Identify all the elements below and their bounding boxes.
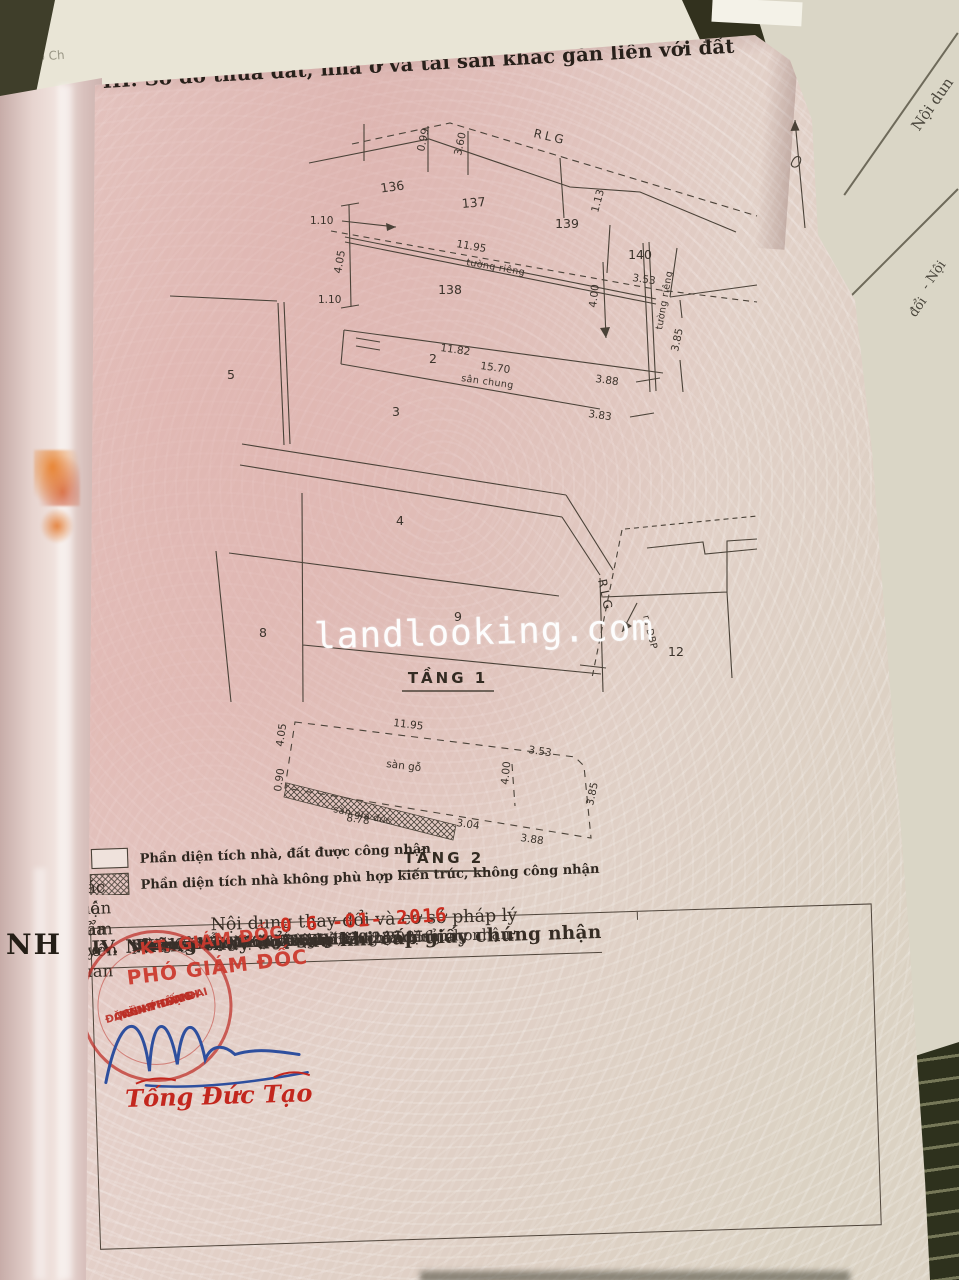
dim-label: 3.88 xyxy=(520,832,545,847)
dim-label: 1.13 xyxy=(589,188,607,214)
dim-label: 4.05 xyxy=(332,249,348,274)
dim-label: 0.90 xyxy=(272,768,287,793)
parcel-label-5: 5 xyxy=(227,367,235,382)
plot-divider xyxy=(560,158,564,218)
dim-label: 11.82 xyxy=(440,342,471,358)
page-edge-highlight xyxy=(711,0,802,26)
dim-line xyxy=(603,262,606,338)
parcel-label-136: 136 xyxy=(380,177,406,195)
dim-label: 3.53 xyxy=(632,272,657,287)
page-fold-left xyxy=(0,0,102,1280)
section4-table: IV. Những thay đổi sau khi cấp giấy chứn… xyxy=(90,903,882,1249)
dim-label: 3.88 xyxy=(595,373,620,388)
parcel-label-140: 140 xyxy=(628,247,652,262)
north-arrow-head xyxy=(791,120,800,131)
orange-mark xyxy=(34,450,80,506)
photo-canvas: ký: Phó Ch ng: Th Nội dun - Nội đổi III.… xyxy=(0,0,959,1280)
dim-label: 4.05 xyxy=(274,723,289,748)
dim-label: 3.85 xyxy=(669,327,686,352)
section4-content-row: Bà: NGUYỄN THỊ TÁM - Năm sinh: 1945 - CM… xyxy=(91,929,98,1151)
edge-line xyxy=(670,285,757,297)
dim-label: 11.95 xyxy=(393,717,424,733)
dim-label: 3.53 xyxy=(528,744,553,759)
band-top-edge xyxy=(309,139,736,232)
site-plan-diagram: RLG 0.99 3.60 1.13 136 137 139 140 3.53 … xyxy=(80,95,860,895)
background-page-rule-line xyxy=(843,32,958,195)
parcel-label-3: 3 xyxy=(392,404,400,419)
parcel-label-137: 137 xyxy=(461,194,486,211)
parcel-label-12: 12 xyxy=(668,644,684,659)
dim-label: 4.00 xyxy=(587,284,602,309)
certificate-page: III. Sơ đồ thửa đất, nhà ở và tài sản kh… xyxy=(0,0,959,1280)
parcel-label-138: 138 xyxy=(438,282,462,297)
legend-box-recognized xyxy=(91,848,128,868)
parcel-label-4: 4 xyxy=(396,513,404,528)
legend-text-not-recognized: Phần diện tích nhà không phù hợp kiến tr… xyxy=(140,861,600,893)
wall-right xyxy=(643,242,656,392)
background-page-text: ng: Th xyxy=(2,65,41,82)
parcel-label-139: 139 xyxy=(555,216,579,231)
background-page-text: Nội dun xyxy=(908,74,958,134)
background-page-text: - Nội xyxy=(919,258,950,293)
background-page-text: đổi xyxy=(906,295,930,320)
dim-label: 3.60 xyxy=(452,131,469,156)
dim-label: 0.99 xyxy=(415,127,432,152)
boundary-label-rlg: RLG xyxy=(532,126,568,147)
parcel-label-2: 2 xyxy=(429,351,437,366)
boundary-dashed-mid xyxy=(331,231,757,302)
dim-label: 3.85 xyxy=(584,781,601,806)
north-arrow xyxy=(795,120,805,228)
signer-name: Tống Đức Tạo xyxy=(116,1078,322,1113)
background-page-rule-line xyxy=(841,188,958,305)
plot-divider xyxy=(607,225,610,273)
step-line xyxy=(647,542,757,554)
dim-label: 3.04 xyxy=(456,817,481,832)
dim-arrow xyxy=(600,327,610,338)
note-yard: sân chung xyxy=(461,373,515,391)
left-edge-text: NH xyxy=(6,928,62,961)
plot4-band xyxy=(240,444,613,575)
dim-label: 1.10 xyxy=(318,294,341,306)
dim-arrow xyxy=(386,223,396,231)
boundary-dashed-right xyxy=(625,516,757,529)
background-page-text: ký: Phó Ch xyxy=(2,48,65,66)
wall-tick xyxy=(356,338,380,350)
dim-label: 3.83 xyxy=(588,408,613,423)
dim-label: 11.95 xyxy=(455,238,487,255)
bottom-shadow xyxy=(420,1271,850,1280)
fold-crease xyxy=(58,85,72,1280)
dim-label: 4.00 xyxy=(499,761,513,786)
dim-label: 1.10 xyxy=(310,215,333,227)
parcel-label-8: 8 xyxy=(259,625,267,640)
note-wood-floor: sàn gỗ xyxy=(386,757,422,774)
dim-label: 15.70 xyxy=(480,360,511,376)
note-wall: tường riêng xyxy=(654,270,675,330)
orange-mark xyxy=(40,508,74,544)
floor1-label: TẦNG 1 xyxy=(408,666,488,687)
plot4-bottom xyxy=(229,553,559,596)
legend-text-recognized: Phần diện tích nhà, đất được công nhận xyxy=(139,841,431,867)
